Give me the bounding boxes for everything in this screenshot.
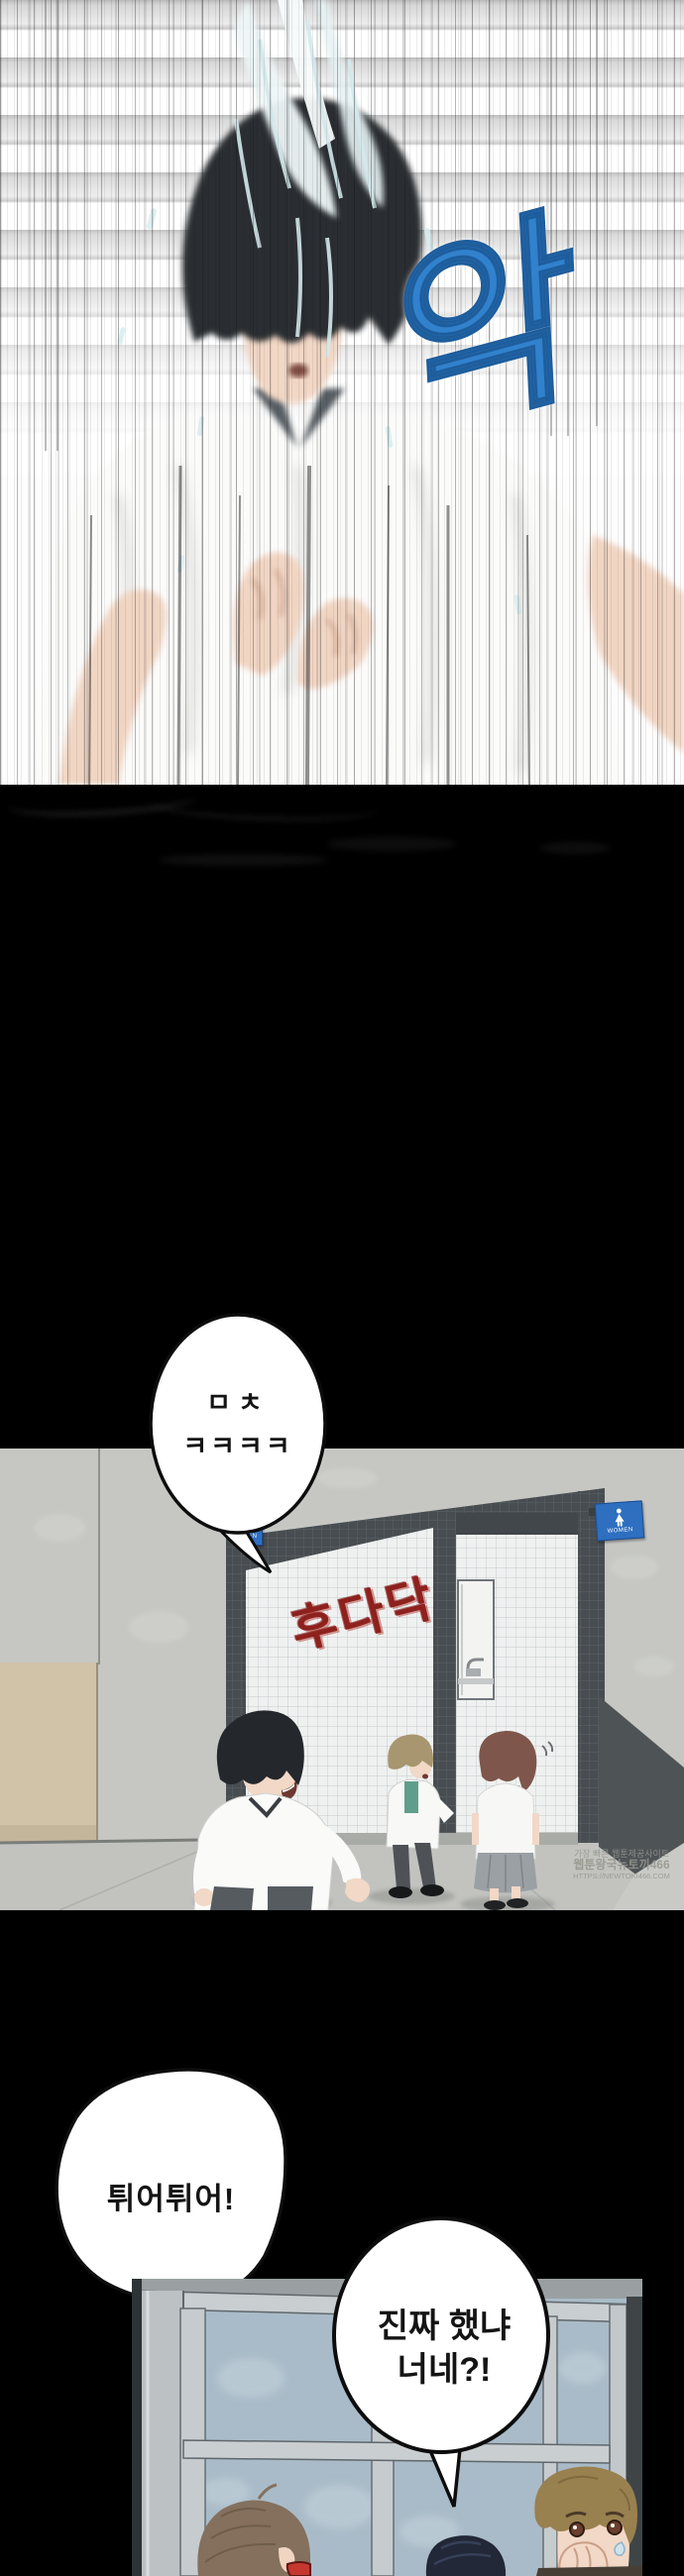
bubble-run-text: 튀어튀어!: [45, 2174, 297, 2218]
bubble-laugh-line1: ㅁㅊ: [139, 1381, 337, 1420]
bubble-question-line2: 너네?!: [325, 2342, 563, 2391]
gap-ink-mark: [540, 842, 610, 854]
womens-restroom-sign: WOMEN: [595, 1500, 645, 1541]
panel-hallway-scene: 후다닥 MEN WOMEN 가장 빠른 웹툰제공사이트 웹툰왕국뉴토끼466 H…: [0, 1449, 684, 1910]
site-watermark: 가장 빠른 웹툰제공사이트 웹툰왕국뉴토끼466 HTTPS://NEWTOKI…: [563, 1849, 680, 1880]
bubble-question-line1: 진짜 했냐: [325, 2299, 563, 2347]
gap-ink-mark: [159, 854, 327, 866]
panel-splash-scene: 악: [0, 0, 684, 785]
hallway-art: [0, 1449, 684, 1910]
speech-bubble-laugh: ㅁㅊ ㅋㅋㅋㅋ: [139, 1310, 337, 1592]
bubble-laugh-line2: ㅋㅋㅋㅋ: [139, 1425, 337, 1463]
speech-bubble-question: 진짜 했냐 너네?!: [325, 2211, 563, 2514]
gap-ink-mark: [149, 789, 378, 824]
gap-ink-mark: [327, 837, 456, 851]
womens-restroom-icon: [612, 1508, 627, 1529]
watermark-line2: 웹툰왕국뉴토끼466: [563, 1859, 680, 1872]
webtoon-page: 악: [0, 0, 684, 2576]
watermark-line3: HTTPS://NEWTOKI466.COM: [563, 1872, 680, 1880]
womens-sign-label: WOMEN: [607, 1527, 633, 1535]
sfx-scream-text: 악: [393, 199, 584, 455]
